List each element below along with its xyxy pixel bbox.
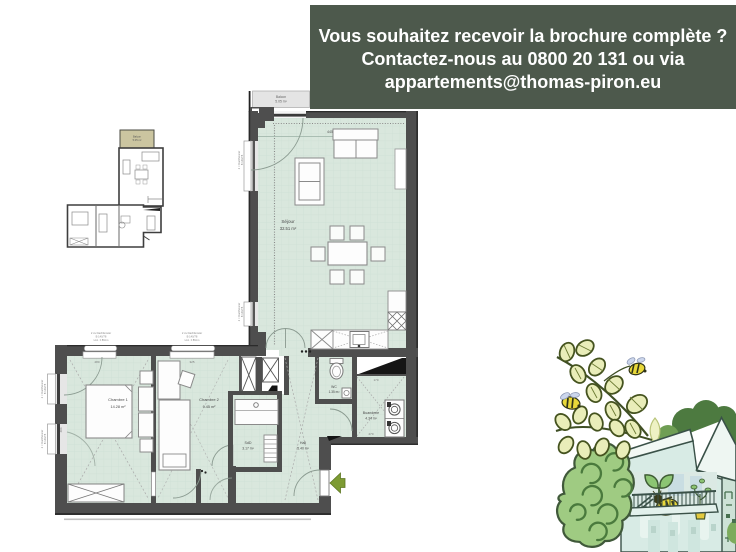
- svg-text:H.A. ± 86cm: H.A. ± 86cm: [94, 338, 110, 342]
- svg-text:Hall: Hall: [300, 441, 306, 445]
- svg-text:2 ov Dachfenster: 2 ov Dachfenster: [91, 331, 111, 335]
- svg-text:Balcon: Balcon: [276, 95, 286, 99]
- svg-text:1.35 m²: 1.35 m²: [329, 390, 340, 394]
- svg-text:14.28 m²: 14.28 m²: [111, 405, 127, 409]
- svg-text:5.05 m²: 5.05 m²: [275, 100, 287, 104]
- svg-text:B 140/78: B 140/78: [96, 334, 107, 338]
- svg-text:32.51 m²: 32.51 m²: [280, 226, 297, 231]
- svg-text:B 140/78: B 140/78: [187, 334, 198, 338]
- svg-text:325: 325: [189, 360, 194, 364]
- svg-text:SdD: SdD: [245, 441, 252, 445]
- svg-text:280: 280: [94, 360, 99, 364]
- svg-text:B 140/78: B 140/78: [240, 306, 244, 317]
- svg-text:9.45 m²: 9.45 m²: [203, 405, 217, 409]
- svg-text:B 140/78: B 140/78: [43, 433, 47, 444]
- svg-text:B 140/78: B 140/78: [240, 154, 244, 165]
- svg-text:Balcon: Balcon: [133, 135, 141, 139]
- svg-text:270: 270: [368, 432, 373, 436]
- svg-text:B 140/78: B 140/78: [43, 383, 47, 394]
- svg-text:H.A. ± 86cm: H.A. ± 86cm: [185, 338, 201, 342]
- svg-text:5.40 m²: 5.40 m²: [297, 447, 309, 451]
- svg-text:445: 445: [327, 130, 333, 134]
- svg-text:WC: WC: [331, 385, 337, 389]
- svg-text:Séjour: Séjour: [281, 219, 295, 224]
- svg-text:Buanderie: Buanderie: [363, 411, 379, 415]
- svg-text:Chambre 2: Chambre 2: [199, 397, 220, 402]
- svg-text:4.34 m²: 4.34 m²: [365, 417, 377, 421]
- svg-text:2 ov Dachfenster: 2 ov Dachfenster: [182, 331, 202, 335]
- svg-text:5.05 m²: 5.05 m²: [133, 138, 142, 142]
- svg-text:Chambre 1: Chambre 1: [108, 397, 129, 402]
- svg-text:3.17 m²: 3.17 m²: [242, 447, 254, 451]
- svg-text:170: 170: [373, 378, 378, 382]
- svg-text:404: 404: [59, 427, 63, 432]
